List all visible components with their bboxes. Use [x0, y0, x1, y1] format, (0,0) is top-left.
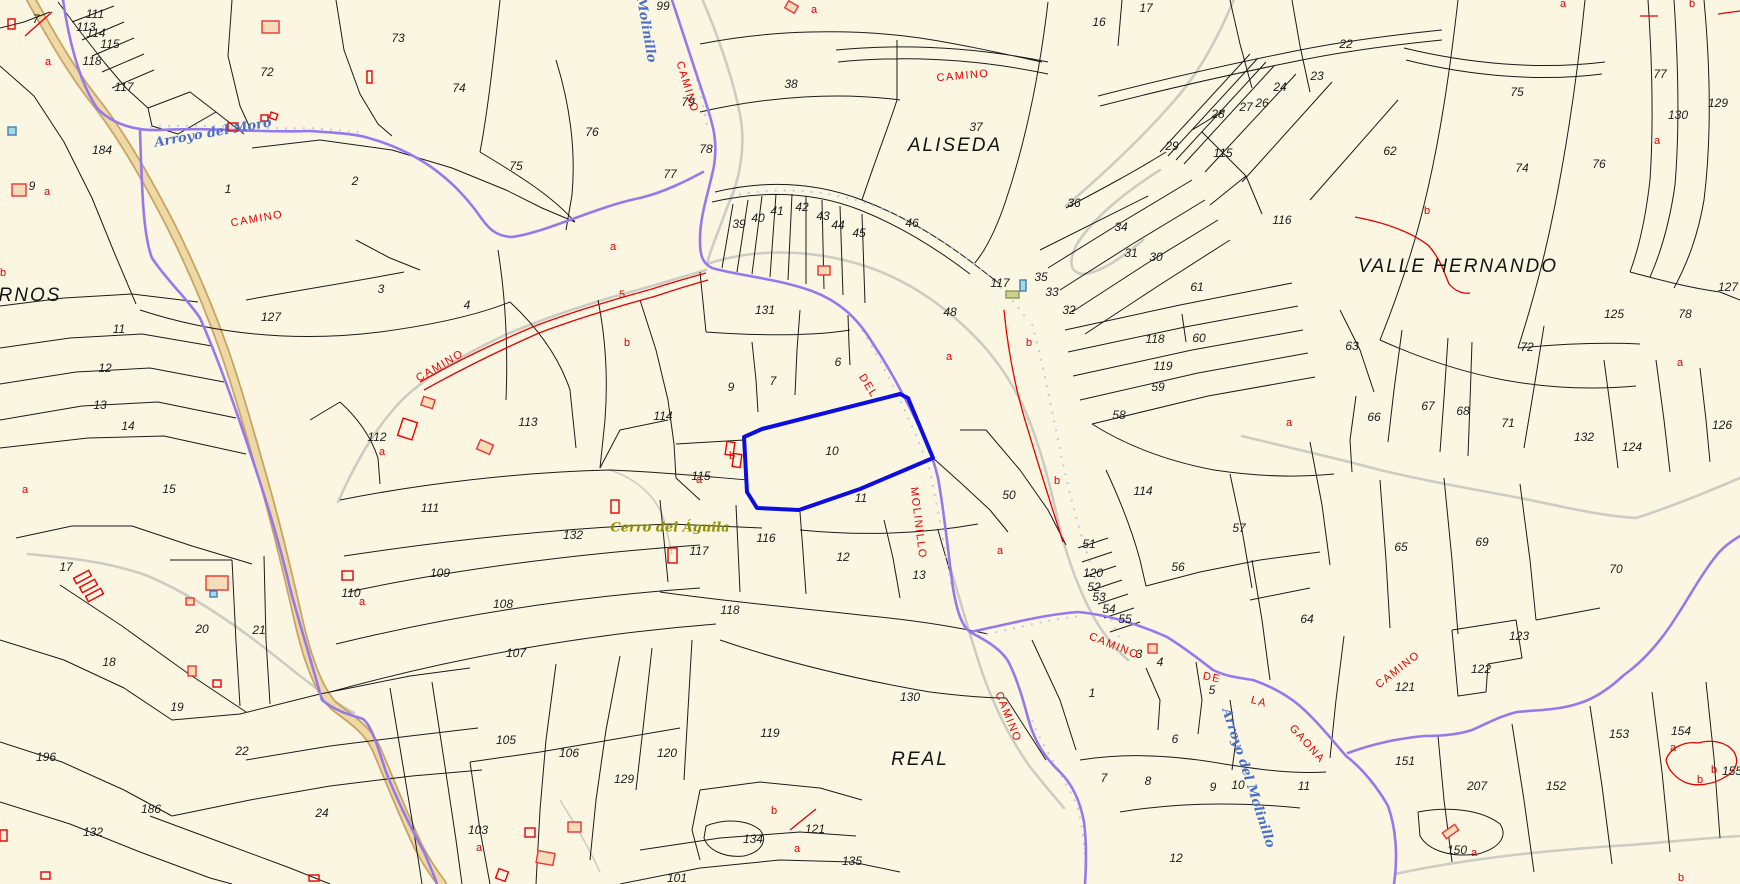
building — [477, 440, 494, 455]
building — [367, 71, 372, 83]
parcel-boundaries — [0, 0, 1740, 884]
building — [0, 830, 7, 841]
building — [525, 828, 535, 837]
building — [568, 822, 581, 832]
building — [398, 418, 418, 440]
building — [269, 112, 278, 120]
building — [421, 396, 435, 408]
selected-parcel-outline[interactable] — [744, 394, 933, 510]
intermittent-stream-dashes — [150, 10, 1124, 884]
building — [785, 1, 799, 13]
building — [80, 579, 98, 592]
building — [206, 576, 228, 590]
building — [1442, 824, 1458, 838]
building — [536, 851, 555, 866]
building — [818, 266, 830, 275]
building — [74, 570, 92, 583]
map-vector-layer — [0, 0, 1740, 884]
building — [188, 666, 196, 676]
building — [12, 184, 26, 196]
building — [496, 869, 509, 882]
building — [668, 548, 677, 563]
streams — [63, 0, 1740, 884]
building — [342, 571, 353, 580]
building — [41, 872, 50, 879]
building — [1020, 280, 1026, 291]
building — [186, 598, 194, 605]
building — [262, 21, 279, 33]
red-road-lines — [25, 11, 1740, 830]
building — [611, 500, 619, 513]
building — [732, 454, 742, 468]
building — [86, 588, 104, 601]
building — [8, 127, 16, 135]
building — [261, 115, 268, 121]
building — [1006, 291, 1019, 298]
building — [213, 680, 221, 687]
map-canvas[interactable]: 1111131141151181177721849127374757699379… — [0, 0, 1740, 884]
building — [210, 591, 217, 597]
building — [1148, 644, 1157, 653]
